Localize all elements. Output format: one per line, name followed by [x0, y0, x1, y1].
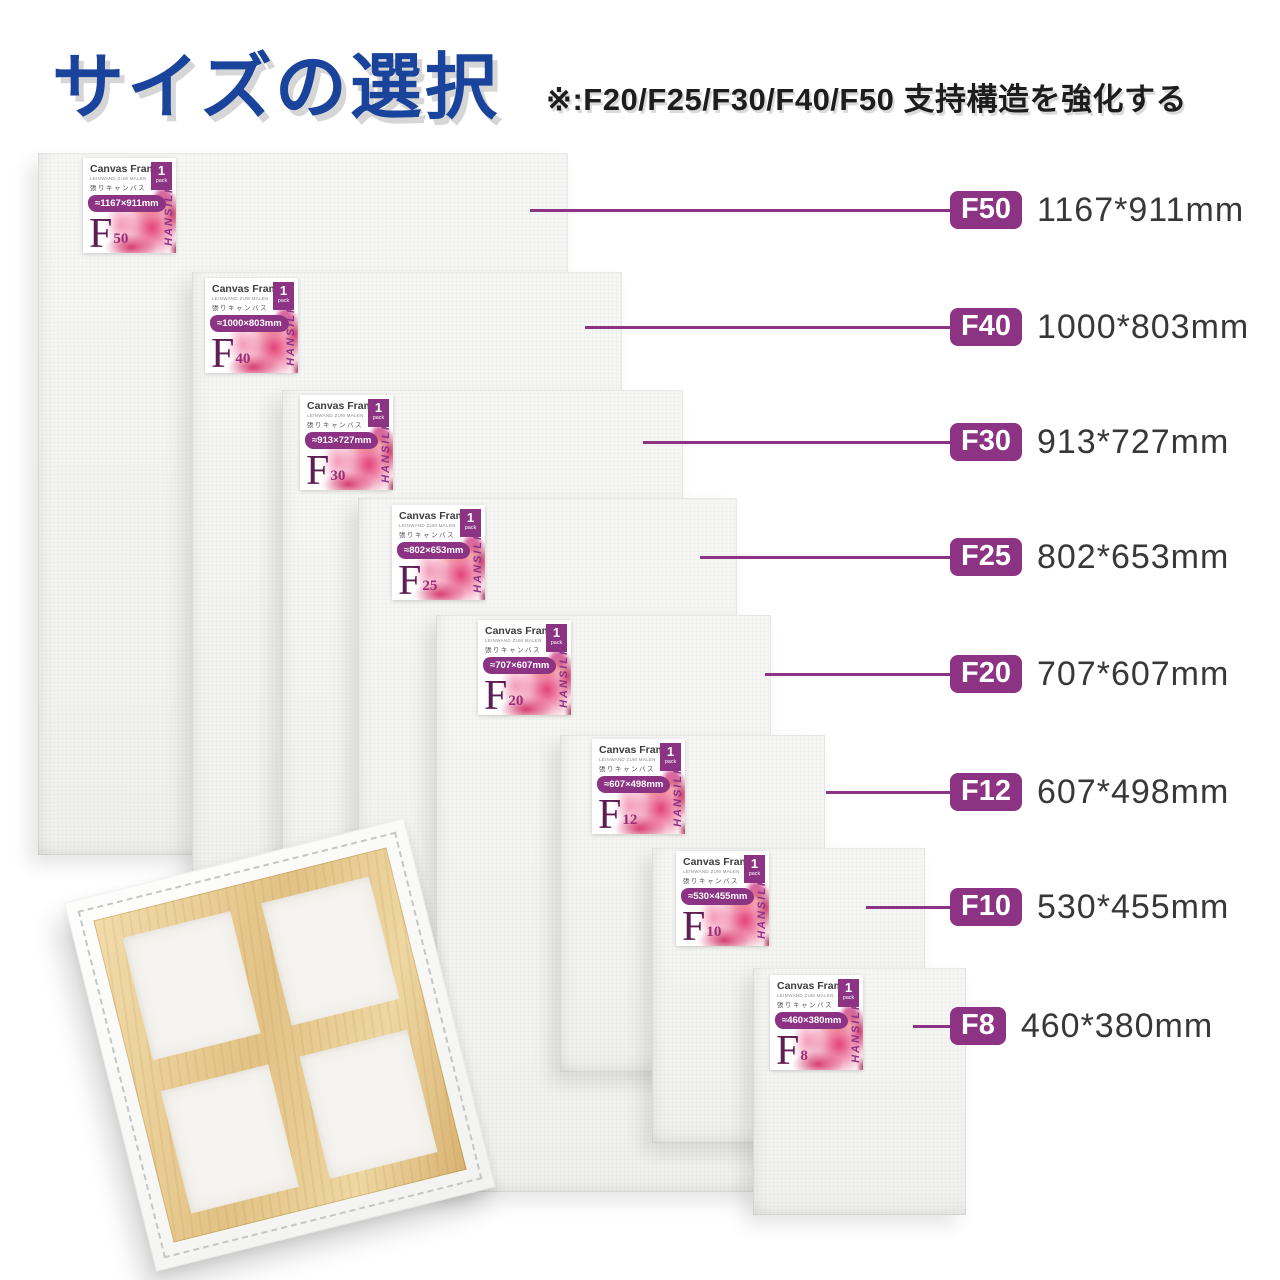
pack-count: 1 [368, 401, 389, 415]
page-title: サイズの選択 [52, 28, 500, 133]
pack-count: 1 [744, 857, 765, 871]
brand-vertical-text: HANSILK [672, 764, 684, 827]
size-code-number: 50 [113, 231, 128, 248]
size-dimensions-text: 913*727mm [1037, 423, 1229, 462]
size-code-badge: F10 [950, 888, 1022, 926]
size-dimensions-text: 1000*803mm [1037, 308, 1249, 347]
size-code-number: 40 [235, 351, 250, 368]
size-code-letter: F [484, 679, 507, 713]
brand-vertical-text: HANSILK [756, 876, 768, 939]
sticker-size-pill: ≈530×455mm [681, 888, 754, 905]
sticker-size-pill: ≈607×498mm [597, 776, 670, 793]
size-dimensions-text: 802*653mm [1037, 538, 1229, 577]
size-dimensions-text: 707*607mm [1037, 655, 1229, 694]
size-label-row: F12 607*498mm [950, 769, 1229, 815]
size-code-letter: F [598, 798, 621, 832]
product-sticker: Canvas Frame LEINWAND ZUM MALEN 張りキャンバス … [392, 505, 485, 600]
sticker-size-pill: ≈707×607mm [483, 657, 556, 674]
size-code-badge: F8 [950, 1007, 1006, 1045]
sticker-size-pill: ≈913×727mm [305, 432, 378, 449]
brand-vertical-text: HANSILK [380, 420, 392, 483]
pack-count: 1 [460, 511, 481, 525]
size-code-number: 10 [706, 924, 721, 941]
leader-line [913, 1025, 950, 1028]
sticker-product-name-jp: 張りキャンバス [599, 763, 655, 773]
size-code-badge: F20 [950, 655, 1022, 693]
size-label-row: F10 530*455mm [950, 884, 1229, 930]
canvas-back-quadrant [261, 876, 399, 1025]
sticker-size-code: F 50 [89, 217, 128, 251]
sticker-size-code: F 25 [398, 564, 437, 598]
size-code-number: 30 [330, 468, 345, 485]
sticker-product-name-jp: 張りキャンバス [485, 644, 541, 654]
size-code-number: 20 [508, 693, 523, 710]
pack-count: 1 [273, 284, 294, 298]
leader-line [765, 673, 950, 676]
leader-line [700, 556, 950, 559]
product-sticker: Canvas Frame LEINWAND ZUM MALEN 張りキャンバス … [676, 851, 769, 946]
canvas-back-quadrant [161, 1064, 299, 1213]
size-code-badge: F50 [950, 191, 1022, 229]
product-sticker: Canvas Frame LEINWAND ZUM MALEN 張りキャンバス … [83, 158, 176, 253]
product-sticker: Canvas Frame LEINWAND ZUM MALEN 張りキャンバス … [478, 620, 571, 715]
size-label-row: F8 460*380mm [950, 1003, 1213, 1049]
sticker-product-name-de: LEINWAND ZUM MALEN [399, 523, 456, 528]
size-code-letter: F [776, 1034, 799, 1068]
size-label-row: F40 1000*803mm [950, 304, 1249, 350]
brand-vertical-text: HANSILK [558, 645, 570, 708]
size-code-letter: F [211, 337, 234, 371]
sticker-product-name-jp: 張りキャンバス [777, 999, 833, 1009]
size-selection-infographic: サイズの選択 ※:F20/F25/F30/F40/F50 支持構造を強化する C… [0, 0, 1280, 1280]
sticker-size-code: F 30 [306, 454, 345, 488]
size-code-number: 8 [800, 1048, 808, 1065]
strengthen-note: ※:F20/F25/F30/F40/F50 支持構造を強化する [546, 74, 1187, 119]
sticker-product-name-de: LEINWAND ZUM MALEN [683, 869, 740, 874]
sticker-product-name-jp: 張りキャンバス [683, 875, 739, 885]
size-label-row: F20 707*607mm [950, 651, 1229, 697]
product-sticker: Canvas Frame LEINWAND ZUM MALEN 張りキャンバス … [300, 395, 393, 490]
size-dimensions-text: 460*380mm [1021, 1007, 1213, 1046]
sticker-size-pill: ≈1000×803mm [210, 315, 289, 332]
sticker-product-name-de: LEINWAND ZUM MALEN [90, 176, 147, 181]
product-sticker: Canvas Frame LEINWAND ZUM MALEN 張りキャンバス … [592, 739, 685, 834]
sticker-product-name-jp: 張りキャンバス [212, 302, 268, 312]
product-sticker: Canvas Frame LEINWAND ZUM MALEN 張りキャンバス … [770, 975, 863, 1070]
sticker-size-pill: ≈1167×911mm [88, 195, 166, 212]
pack-count: 1 [660, 745, 681, 759]
leader-line [585, 326, 950, 329]
pack-count: 1 [838, 981, 859, 995]
size-label-row: F30 913*727mm [950, 419, 1229, 465]
canvas-panel: Canvas Frame LEINWAND ZUM MALEN 張りキャンバス … [753, 968, 966, 1215]
sticker-product-name-de: LEINWAND ZUM MALEN [599, 757, 656, 762]
leader-line [530, 209, 950, 212]
size-code-letter: F [306, 454, 329, 488]
size-dimensions-text: 530*455mm [1037, 888, 1229, 927]
sticker-size-pill: ≈460×380mm [775, 1012, 848, 1029]
brand-vertical-text: HANSILK [285, 303, 297, 366]
sticker-product-name-de: LEINWAND ZUM MALEN [307, 413, 364, 418]
size-code-badge: F30 [950, 423, 1022, 461]
size-dimensions-text: 1167*911mm [1037, 191, 1244, 230]
brand-vertical-text: HANSILK [472, 530, 484, 593]
size-code-number: 25 [422, 578, 437, 595]
sticker-size-code: F 40 [211, 337, 250, 371]
pack-count: 1 [151, 164, 172, 178]
sticker-size-code: F 12 [598, 798, 637, 832]
size-code-badge: F40 [950, 308, 1022, 346]
size-dimensions-text: 607*498mm [1037, 773, 1229, 812]
sticker-product-name-jp: 張りキャンバス [307, 419, 363, 429]
sticker-product-name-de: LEINWAND ZUM MALEN [485, 638, 542, 643]
sticker-product-name-de: LEINWAND ZUM MALEN [777, 993, 834, 998]
size-code-letter: F [398, 564, 421, 598]
sticker-size-code: F 20 [484, 679, 523, 713]
size-code-badge: F25 [950, 538, 1022, 576]
leader-line [866, 906, 950, 909]
size-label-row: F25 802*653mm [950, 534, 1229, 580]
canvas-back-quadrant [122, 911, 260, 1060]
leader-line [643, 441, 950, 444]
sticker-size-pill: ≈802×653mm [397, 542, 470, 559]
size-code-letter: F [682, 910, 705, 944]
brand-vertical-text: HANSILK [850, 1000, 862, 1063]
size-code-letter: F [89, 217, 112, 251]
size-label-row: F50 1167*911mm [950, 187, 1244, 233]
sticker-product-name-jp: 張りキャンバス [399, 529, 455, 539]
canvas-back-quadrant [299, 1030, 437, 1179]
sticker-size-code: F 8 [776, 1034, 808, 1068]
wooden-stretcher-bars [93, 847, 466, 1242]
pack-count: 1 [546, 626, 567, 640]
product-sticker: Canvas Frame LEINWAND ZUM MALEN 張りキャンバス … [205, 278, 298, 373]
brand-vertical-text: HANSILK [163, 183, 175, 246]
sticker-product-name-jp: 張りキャンバス [90, 182, 146, 192]
size-code-badge: F12 [950, 773, 1022, 811]
size-code-number: 12 [622, 812, 637, 829]
leader-line [826, 791, 950, 794]
sticker-product-name-de: LEINWAND ZUM MALEN [212, 296, 269, 301]
sticker-size-code: F 10 [682, 910, 721, 944]
